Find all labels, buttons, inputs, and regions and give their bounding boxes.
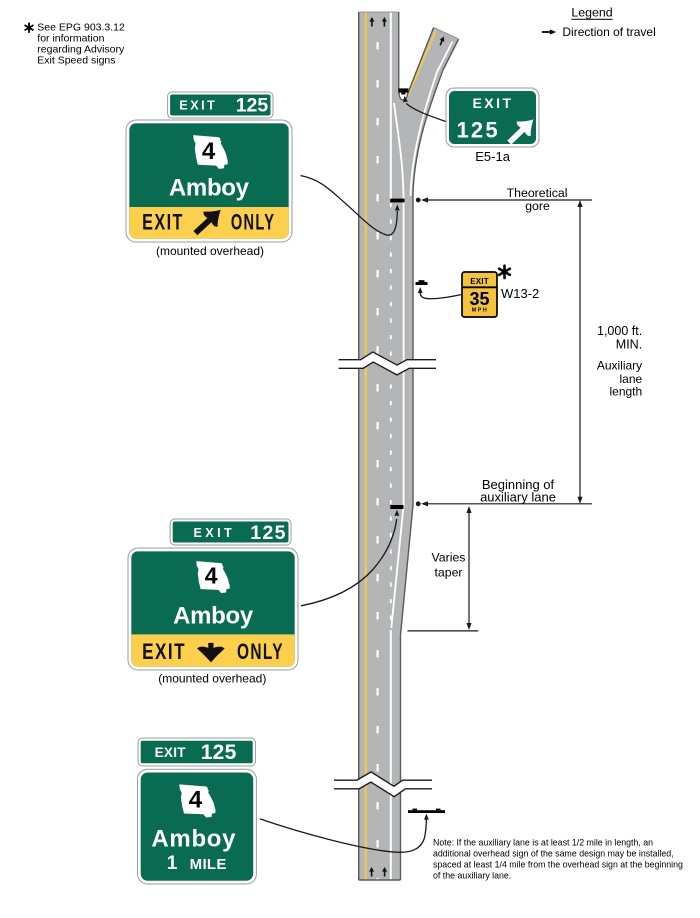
svg-text:4: 4 xyxy=(189,787,203,814)
svg-text:(mounted overhead): (mounted overhead) xyxy=(156,244,264,258)
svg-text:Note: If the auxiliary lane is: Note: If the auxiliary lane is at least … xyxy=(433,837,653,847)
svg-text:EXIT: EXIT xyxy=(155,745,187,760)
svg-text:(mounted overhead): (mounted overhead) xyxy=(158,672,266,686)
svg-text:Exit Speed signs: Exit Speed signs xyxy=(37,54,115,66)
svg-text:EXIT: EXIT xyxy=(142,640,186,665)
svg-text:35: 35 xyxy=(469,289,489,309)
svg-text:Theoretical: Theoretical xyxy=(507,186,568,200)
svg-text:spaced at least 1/4 mile from: spaced at least 1/4 mile from the overhe… xyxy=(433,860,683,870)
svg-text:Amboy: Amboy xyxy=(169,174,250,201)
svg-text:W13-2: W13-2 xyxy=(501,286,539,301)
svg-text:EXIT: EXIT xyxy=(472,95,513,111)
svg-text:4: 4 xyxy=(205,563,218,589)
svg-text:125: 125 xyxy=(236,95,269,117)
svg-text:ONLY: ONLY xyxy=(237,640,284,664)
svg-text:Amboy: Amboy xyxy=(151,825,236,852)
svg-text:Legend: Legend xyxy=(571,6,612,20)
svg-text:1: 1 xyxy=(167,853,178,874)
svg-text:gore: gore xyxy=(525,199,550,213)
svg-text:EXIT: EXIT xyxy=(179,98,217,112)
svg-text:additional overhead sign of th: additional overhead sign of the same des… xyxy=(433,848,674,858)
svg-text:MPH: MPH xyxy=(472,308,488,314)
svg-text:E5-1a: E5-1a xyxy=(475,149,510,164)
svg-text:EXIT: EXIT xyxy=(142,210,184,235)
svg-text:of the auxiliary lane.: of the auxiliary lane. xyxy=(433,871,511,881)
svg-text:125: 125 xyxy=(457,118,500,143)
svg-text:Auxiliary: Auxiliary xyxy=(597,359,642,373)
svg-text:auxiliary lane: auxiliary lane xyxy=(480,490,556,505)
svg-text:4: 4 xyxy=(202,138,216,165)
svg-text:1,000 ft.: 1,000 ft. xyxy=(597,324,642,338)
svg-text:ONLY: ONLY xyxy=(231,211,275,236)
svg-text:EXIT: EXIT xyxy=(194,526,236,540)
svg-text:Varies: Varies xyxy=(432,550,466,564)
svg-text:taper: taper xyxy=(434,566,462,580)
svg-text:EXIT: EXIT xyxy=(470,277,489,286)
svg-text:Direction of travel: Direction of travel xyxy=(562,25,655,39)
svg-text:MIN.: MIN. xyxy=(616,337,642,351)
svg-text:125: 125 xyxy=(201,741,237,764)
svg-text:125: 125 xyxy=(250,522,287,544)
svg-text:Amboy: Amboy xyxy=(173,603,254,630)
svg-text:length: length xyxy=(609,384,642,398)
svg-text:MILE: MILE xyxy=(190,856,227,873)
